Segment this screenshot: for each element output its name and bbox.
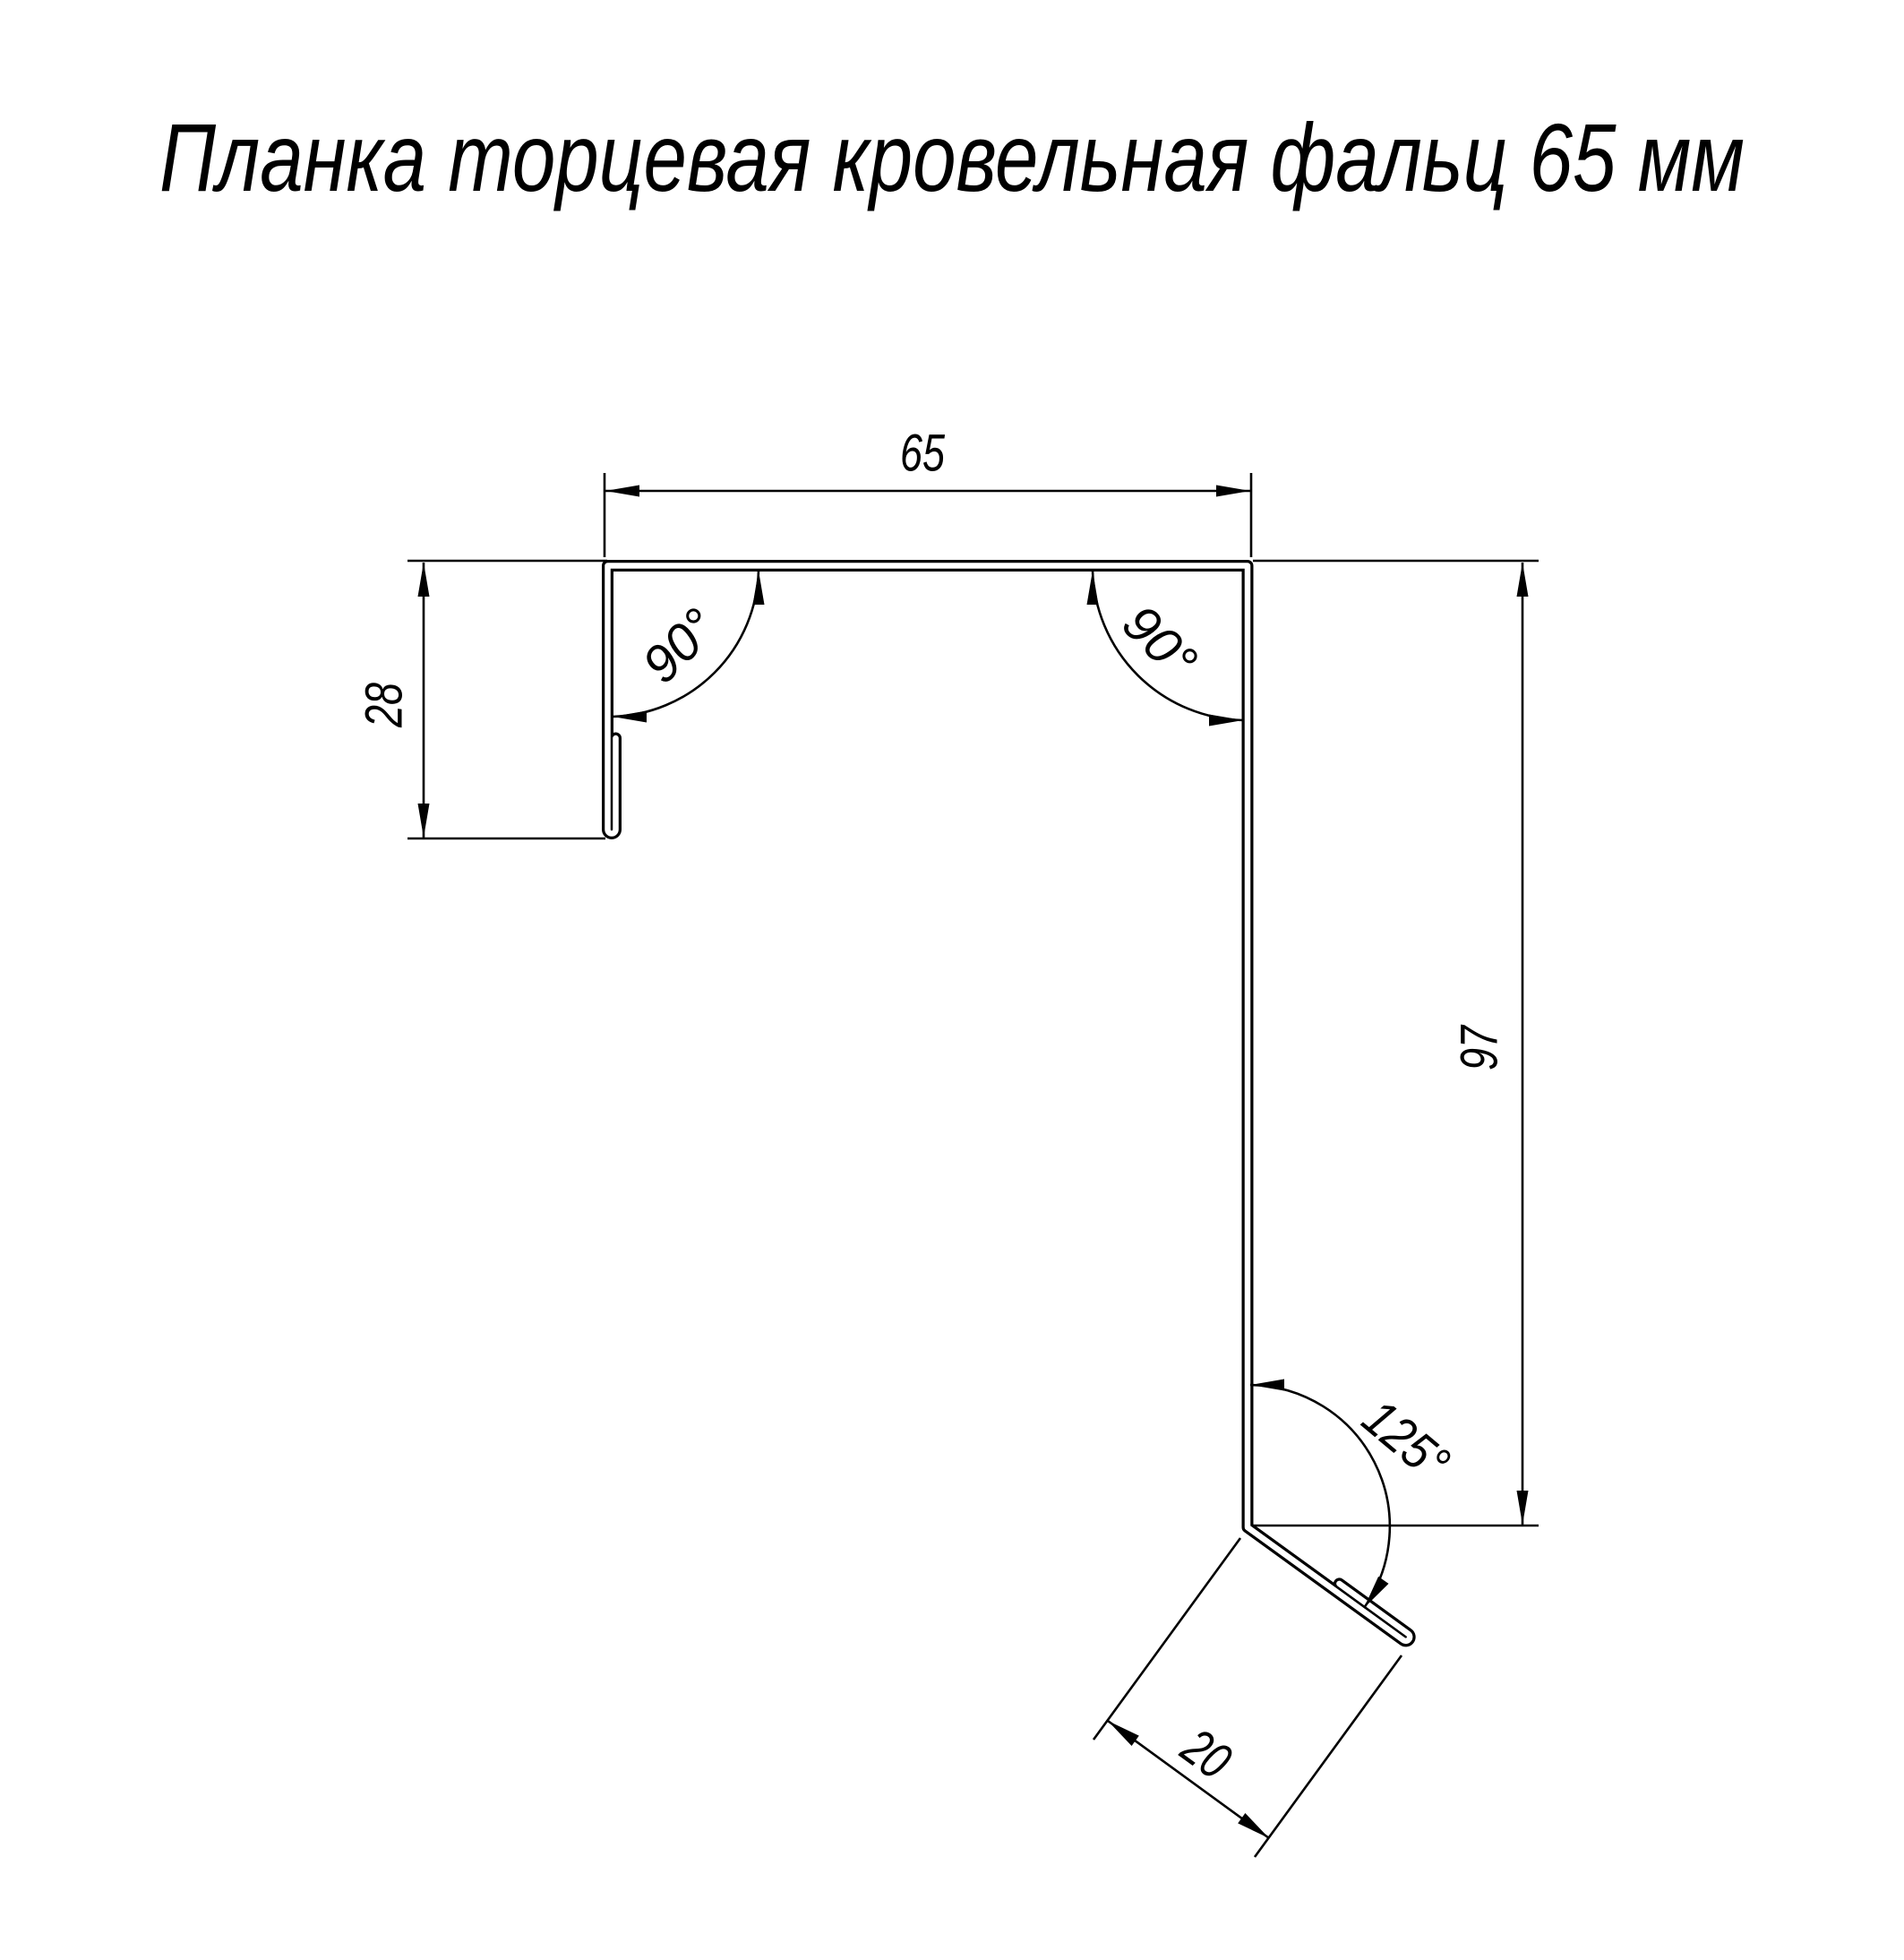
angle-90-top-right: 90° (1087, 571, 1244, 726)
arrowhead (1216, 486, 1250, 497)
arrowhead (1238, 1813, 1269, 1838)
dimension-height-97: 97 (1252, 561, 1539, 1526)
dimension-height-28: 28 (356, 561, 608, 838)
sheet-profile (608, 566, 1411, 1641)
angle-label-90-right: 90° (1111, 594, 1208, 691)
dimension-flange-20: 20 (1094, 1538, 1402, 1857)
arrowhead (418, 563, 430, 597)
arrowhead (418, 804, 430, 838)
dimension-label-65: 65 (900, 425, 946, 483)
dimension-65-lines (605, 473, 1251, 557)
dimension-width-65: 65 (605, 425, 1251, 558)
arrowhead (1209, 715, 1243, 726)
dimension-label-97: 97 (1451, 1024, 1509, 1070)
arrowhead (1250, 1380, 1284, 1391)
drawing-page: Планка торцевая кровельная фальц 65 мм 6… (0, 0, 1904, 1960)
dimension-20-lines (1094, 1538, 1402, 1857)
drawing-title: Планка торцевая кровельная фальц 65 мм (159, 103, 1745, 211)
arrowhead (1517, 1491, 1529, 1525)
sheet-profile-outline (608, 566, 1411, 1641)
angle-label-125: 125° (1351, 1388, 1460, 1493)
dimension-28-lines (407, 561, 607, 838)
angle-90-top-left: 90° (613, 571, 765, 723)
arrowhead (1108, 1721, 1139, 1746)
angle-125-bottom: 125° (1250, 1380, 1461, 1609)
dimension-label-20: 20 (1171, 1717, 1241, 1791)
angle-label-90-left: 90° (631, 597, 728, 694)
arrowhead (605, 486, 639, 497)
arrowhead (753, 571, 765, 605)
arrowhead (1364, 1577, 1389, 1608)
arrowhead (613, 711, 647, 723)
arrowhead (1087, 571, 1099, 605)
dimension-label-28: 28 (356, 683, 414, 728)
arrowhead (1517, 563, 1529, 597)
technical-drawing-svg: Планка торцевая кровельная фальц 65 мм 6… (0, 0, 1904, 1960)
sheet-profile-core (608, 566, 1411, 1641)
